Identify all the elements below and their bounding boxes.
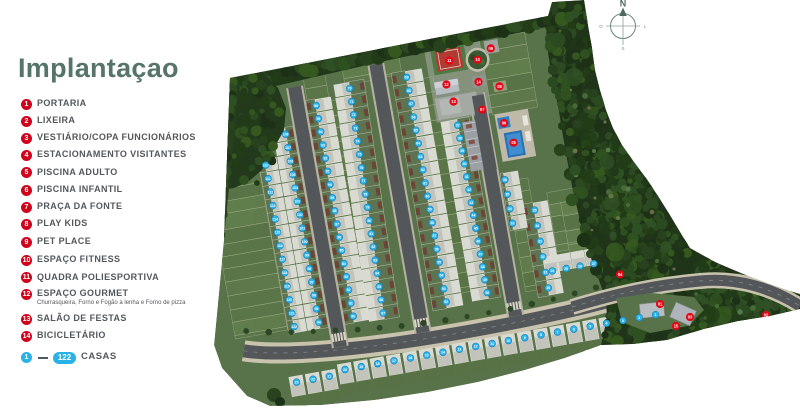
svg-text:102: 102	[297, 213, 303, 217]
svg-text:42: 42	[467, 188, 471, 192]
svg-text:87: 87	[335, 222, 339, 226]
svg-text:63: 63	[419, 155, 423, 159]
svg-text:58: 58	[430, 221, 434, 225]
svg-text:41: 41	[465, 175, 469, 179]
svg-text:47: 47	[478, 252, 482, 256]
svg-text:111: 111	[265, 177, 271, 181]
svg-text:7: 7	[557, 330, 559, 334]
svg-text:3: 3	[622, 319, 624, 323]
svg-text:94: 94	[319, 130, 323, 134]
svg-text:72: 72	[352, 113, 356, 117]
svg-text:80: 80	[367, 219, 371, 223]
svg-text:40: 40	[463, 162, 467, 166]
svg-text:13: 13	[451, 99, 456, 104]
svg-text:64: 64	[416, 142, 420, 146]
svg-text:77: 77	[361, 179, 365, 183]
svg-text:08: 08	[497, 84, 502, 89]
svg-text:93: 93	[321, 143, 325, 147]
svg-text:71: 71	[350, 100, 354, 104]
svg-text:O: O	[599, 24, 603, 29]
svg-text:S: S	[621, 46, 624, 51]
svg-text:87: 87	[381, 311, 385, 315]
svg-text:83: 83	[344, 275, 348, 279]
svg-text:96: 96	[312, 294, 316, 298]
svg-text:9: 9	[524, 336, 526, 340]
svg-text:23: 23	[295, 380, 299, 384]
svg-text:113: 113	[270, 204, 276, 208]
svg-text:94: 94	[317, 321, 321, 325]
svg-text:70: 70	[348, 87, 352, 91]
svg-text:26: 26	[578, 264, 582, 268]
svg-text:8: 8	[540, 333, 542, 337]
svg-text:48: 48	[481, 265, 485, 269]
svg-text:15: 15	[674, 324, 679, 329]
svg-text:108: 108	[283, 133, 289, 137]
svg-text:03: 03	[688, 315, 693, 320]
svg-text:54: 54	[440, 274, 444, 278]
svg-text:91: 91	[326, 170, 330, 174]
svg-text:61: 61	[423, 181, 427, 185]
svg-text:52: 52	[444, 300, 448, 304]
svg-text:99: 99	[305, 253, 309, 257]
svg-text:84: 84	[342, 262, 346, 266]
svg-text:31: 31	[544, 271, 548, 275]
svg-text:39: 39	[460, 149, 464, 153]
svg-text:14: 14	[476, 79, 481, 84]
svg-text:55: 55	[437, 261, 441, 265]
svg-text:114: 114	[272, 217, 278, 221]
svg-text:78: 78	[363, 192, 367, 196]
svg-text:105: 105	[290, 173, 296, 177]
svg-text:2: 2	[638, 316, 640, 320]
svg-text:04: 04	[618, 272, 623, 277]
svg-text:117: 117	[279, 258, 285, 262]
svg-text:82: 82	[371, 245, 375, 249]
svg-text:10: 10	[475, 57, 480, 62]
svg-text:09: 09	[489, 46, 494, 51]
svg-text:20: 20	[343, 368, 347, 372]
svg-text:79: 79	[365, 206, 369, 210]
svg-text:85: 85	[340, 249, 344, 253]
svg-text:05: 05	[511, 140, 516, 145]
svg-text:22: 22	[311, 378, 315, 382]
svg-text:24: 24	[550, 269, 554, 273]
svg-text:01: 01	[658, 302, 663, 307]
svg-text:112: 112	[268, 190, 274, 194]
svg-text:27: 27	[592, 262, 596, 266]
svg-text:76: 76	[359, 166, 363, 170]
svg-text:81: 81	[369, 232, 373, 236]
svg-text:37: 37	[456, 124, 460, 128]
svg-text:92: 92	[323, 157, 327, 161]
svg-text:84: 84	[375, 272, 379, 276]
svg-text:43: 43	[469, 201, 473, 205]
svg-text:15: 15	[425, 353, 429, 357]
svg-text:69: 69	[405, 76, 409, 80]
svg-text:66: 66	[412, 115, 416, 119]
svg-text:17: 17	[392, 359, 396, 363]
svg-text:89: 89	[330, 196, 334, 200]
svg-text:97: 97	[310, 280, 314, 284]
svg-text:33: 33	[538, 240, 542, 244]
svg-text:90: 90	[328, 183, 332, 187]
svg-text:19: 19	[359, 365, 363, 369]
svg-text:56: 56	[435, 247, 439, 251]
svg-text:45: 45	[474, 227, 478, 231]
svg-text:80: 80	[351, 315, 355, 319]
svg-text:07: 07	[480, 107, 485, 112]
svg-text:33: 33	[511, 222, 515, 226]
svg-text:38: 38	[458, 136, 462, 140]
svg-text:67: 67	[409, 102, 413, 106]
svg-text:N: N	[620, 0, 627, 9]
svg-text:121: 121	[289, 312, 295, 316]
svg-text:L: L	[644, 24, 647, 29]
svg-text:118: 118	[282, 271, 288, 275]
svg-text:30: 30	[546, 286, 550, 290]
svg-text:82: 82	[347, 288, 351, 292]
svg-text:14: 14	[441, 351, 445, 355]
svg-text:49: 49	[483, 278, 487, 282]
svg-text:106: 106	[287, 159, 293, 163]
svg-text:50: 50	[485, 291, 489, 295]
svg-text:86: 86	[337, 236, 341, 240]
svg-text:104: 104	[292, 186, 298, 190]
svg-text:74: 74	[356, 140, 360, 144]
svg-text:98: 98	[307, 267, 311, 271]
svg-text:68: 68	[407, 89, 411, 93]
svg-text:100: 100	[302, 240, 308, 244]
svg-text:107: 107	[285, 146, 291, 150]
svg-text:60: 60	[426, 195, 430, 199]
svg-text:88: 88	[333, 209, 337, 213]
svg-text:06: 06	[502, 121, 507, 126]
svg-text:65: 65	[414, 129, 418, 133]
svg-text:46: 46	[476, 239, 480, 243]
svg-text:115: 115	[275, 231, 281, 235]
svg-text:34: 34	[535, 224, 539, 228]
svg-text:13: 13	[457, 348, 461, 352]
svg-text:25: 25	[564, 267, 568, 271]
svg-text:44: 44	[472, 214, 476, 218]
svg-text:11: 11	[490, 342, 494, 346]
svg-text:116: 116	[277, 244, 283, 248]
svg-text:73: 73	[354, 126, 358, 130]
svg-text:21: 21	[327, 375, 331, 379]
svg-text:75: 75	[358, 153, 362, 157]
svg-text:35: 35	[533, 208, 537, 212]
svg-text:85: 85	[377, 285, 381, 289]
svg-text:62: 62	[421, 168, 425, 172]
svg-text:110: 110	[263, 163, 269, 167]
svg-text:103: 103	[294, 200, 300, 204]
svg-text:34: 34	[508, 207, 512, 211]
svg-text:02: 02	[764, 313, 769, 318]
svg-text:83: 83	[373, 258, 377, 262]
svg-text:12: 12	[474, 345, 478, 349]
svg-text:86: 86	[379, 298, 383, 302]
svg-text:122: 122	[291, 325, 297, 329]
svg-text:57: 57	[433, 234, 437, 238]
svg-text:96: 96	[314, 104, 318, 108]
svg-text:10: 10	[506, 339, 510, 343]
svg-text:95: 95	[314, 307, 318, 311]
svg-text:6: 6	[573, 327, 575, 331]
svg-text:119: 119	[284, 285, 290, 289]
svg-text:5: 5	[589, 325, 591, 329]
svg-text:95: 95	[316, 117, 320, 121]
svg-text:81: 81	[349, 301, 353, 305]
svg-text:18: 18	[376, 362, 380, 366]
svg-text:101: 101	[299, 227, 305, 231]
svg-text:53: 53	[442, 287, 446, 291]
svg-text:12: 12	[444, 82, 449, 87]
svg-text:35: 35	[505, 193, 509, 197]
svg-text:4: 4	[606, 322, 608, 326]
svg-text:1: 1	[655, 313, 657, 317]
svg-text:36: 36	[503, 178, 507, 182]
svg-text:11: 11	[447, 58, 452, 63]
svg-text:59: 59	[428, 208, 432, 212]
svg-text:16: 16	[408, 356, 412, 360]
svg-text:120: 120	[286, 298, 292, 302]
svg-text:32: 32	[541, 255, 545, 259]
